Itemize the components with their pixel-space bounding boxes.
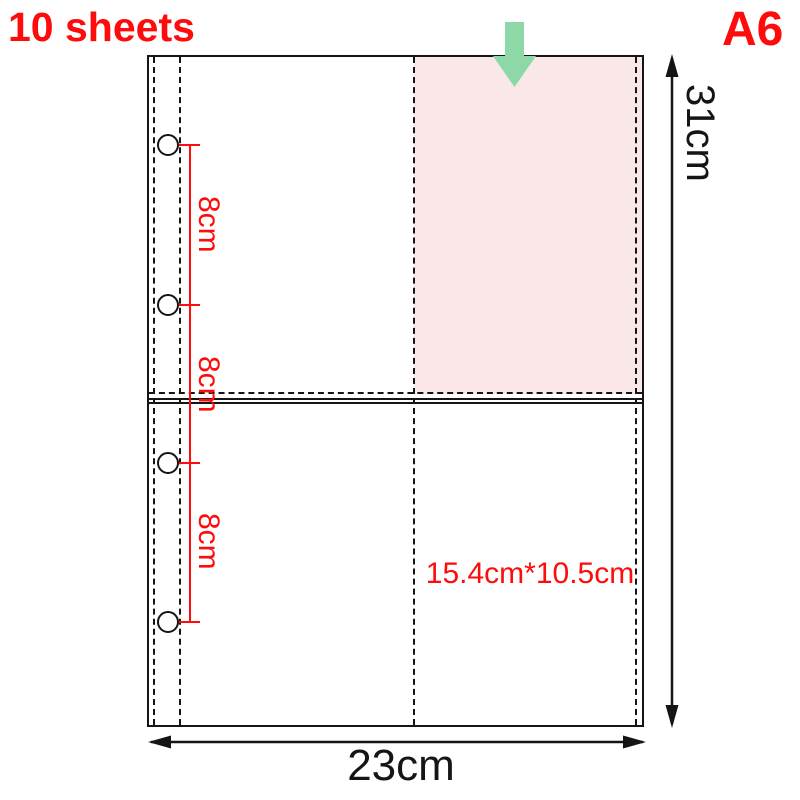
hole-spacing-label-1: 8cm — [193, 182, 223, 266]
hole-spacing-label-2: 8cm — [193, 342, 223, 426]
width-dimension-arrowhead-right — [623, 736, 646, 749]
sheet-outline: 8cm 8cm 8cm — [147, 55, 644, 727]
width-dimension-arrowhead-left — [148, 736, 171, 749]
hole-spacing-tick-2 — [179, 304, 200, 306]
seam-dashed-left-outer — [153, 57, 155, 725]
height-dimension-label: 31cm — [680, 84, 720, 182]
binder-hole-2 — [157, 294, 179, 316]
hole-spacing-line — [189, 145, 191, 622]
width-dimension-label: 23cm — [301, 744, 501, 788]
size-badge: A6 — [722, 2, 783, 57]
seam-dashed-center — [413, 57, 415, 725]
height-dimension-arrowhead-top — [666, 54, 679, 77]
product-diagram: 8cm 8cm 8cm 10 sheets A6 31cm 23cm 15.4c… — [0, 0, 800, 800]
hole-spacing-tick-3 — [179, 462, 200, 464]
seam-dashed-right — [635, 57, 637, 725]
hole-spacing-tick-4 — [179, 621, 200, 623]
binder-hole-3 — [157, 452, 179, 474]
sheet-count-label: 10 sheets — [8, 4, 195, 51]
hole-spacing-tick-1 — [179, 144, 200, 146]
hole-spacing-label-3: 8cm — [193, 499, 223, 583]
binder-hole-1 — [157, 134, 179, 156]
binder-hole-4 — [157, 611, 179, 633]
height-dimension-arrowhead-bottom — [666, 705, 679, 728]
pocket-highlight — [414, 57, 642, 394]
seam-dashed-left-inner — [179, 57, 181, 725]
pocket-size-label: 15.4cm*10.5cm — [417, 556, 643, 592]
